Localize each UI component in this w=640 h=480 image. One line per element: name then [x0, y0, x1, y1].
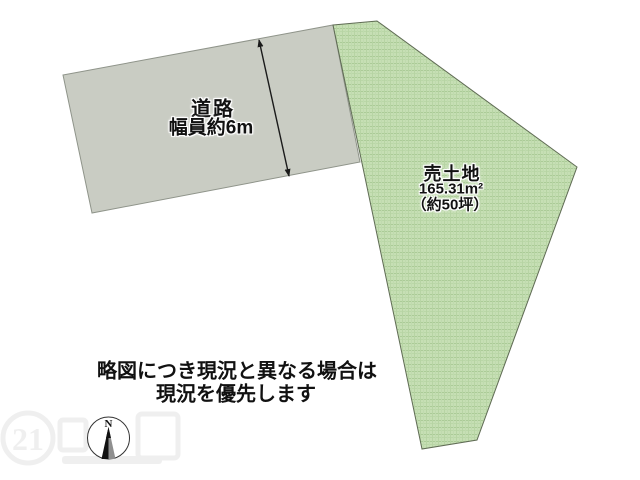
compass: N: [88, 417, 130, 459]
road-width-label: 幅員約6m: [169, 113, 253, 140]
land-shape: [333, 21, 577, 449]
disclaimer-line2: 現況を優先します: [156, 378, 316, 407]
land-tsubo-label: （約50坪）: [412, 194, 489, 215]
diagram-canvas: 21 N: [0, 0, 640, 480]
watermark-number: 21: [12, 421, 44, 457]
plot-diagram: 21 N 道路 幅員約6m 売土地 165.31m² （約50坪） 略図につき現…: [0, 0, 640, 480]
